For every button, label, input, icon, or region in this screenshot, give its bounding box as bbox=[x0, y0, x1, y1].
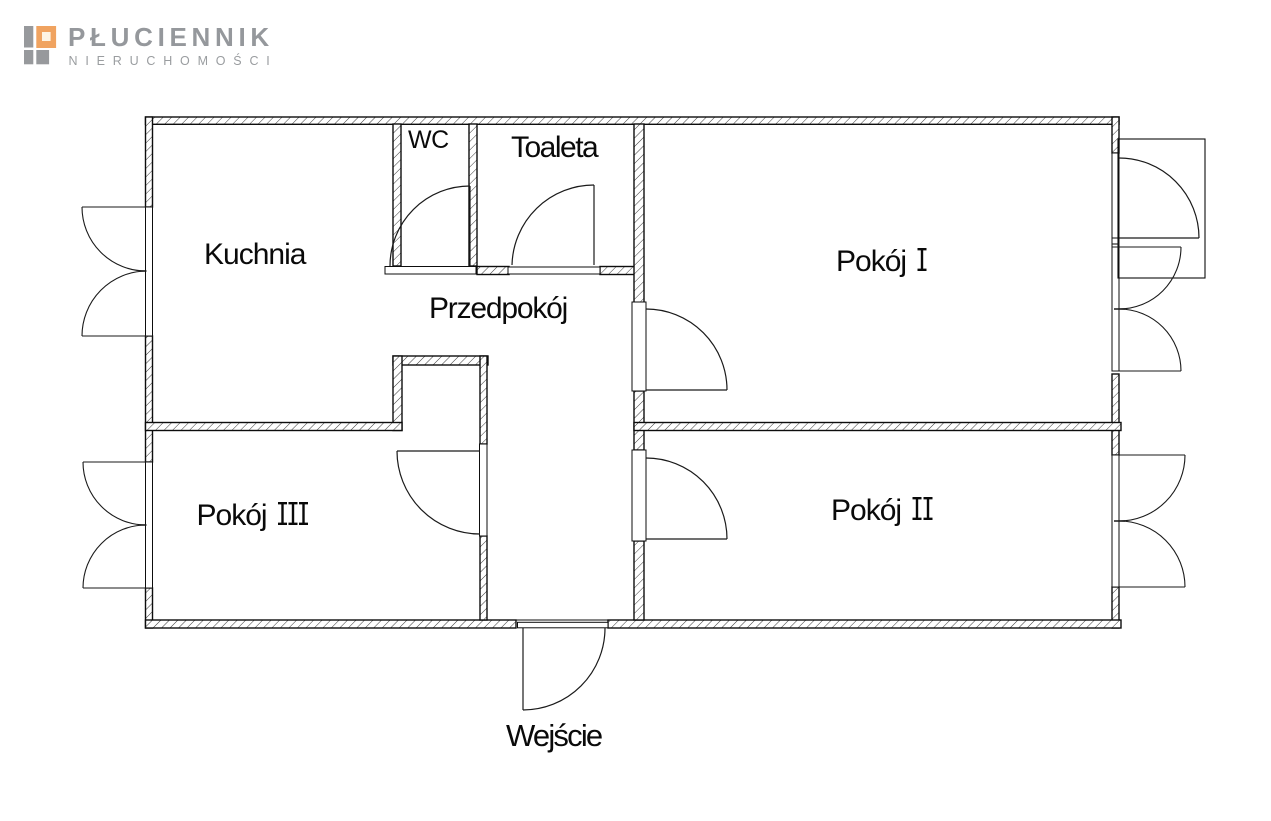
svg-text:Wejście: Wejście bbox=[506, 718, 602, 753]
svg-text:Przedpokój: Przedpokój bbox=[429, 292, 567, 325]
svg-text:Pokój: Pokój bbox=[836, 245, 906, 278]
svg-text:Kuchnia: Kuchnia bbox=[204, 238, 307, 271]
svg-text:PŁUCIENNIK: PŁUCIENNIK bbox=[68, 22, 274, 52]
svg-text:Pokój: Pokój bbox=[197, 499, 267, 532]
svg-text:Pokój: Pokój bbox=[831, 494, 901, 527]
svg-text:WC: WC bbox=[408, 126, 449, 154]
svg-text:NIERUCHOMOŚCI: NIERUCHOMOŚCI bbox=[69, 53, 278, 68]
svg-text:Toaleta: Toaleta bbox=[511, 131, 599, 164]
